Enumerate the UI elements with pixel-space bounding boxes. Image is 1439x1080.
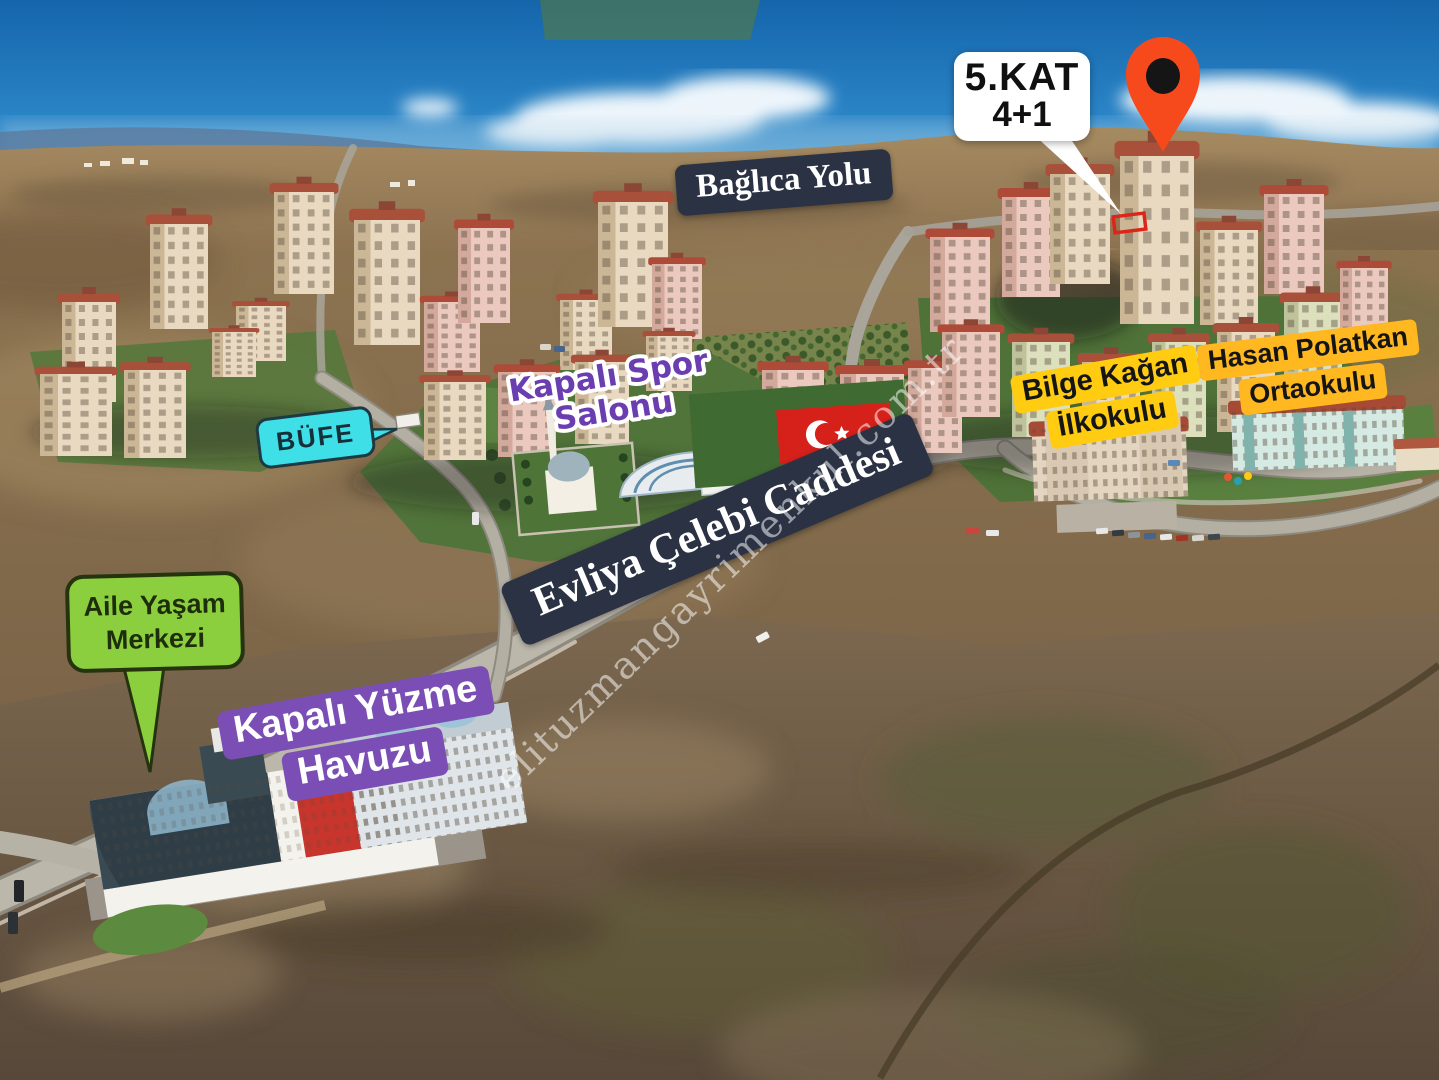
aile-yasam-line1: Aile Yaşam <box>73 587 236 625</box>
callout-5kat-4plus1: 5.KAT 4+1 <box>954 52 1090 141</box>
callout-floor-line: 5.KAT <box>954 58 1090 97</box>
label-aile-yasam-merkezi: Aile Yaşam Merkezi <box>65 571 245 673</box>
callout-rooms-line: 4+1 <box>954 97 1090 132</box>
aerial-listing-photo: Kapalı Spor Salonu Bağlıca Yolu 5.KAT 4+… <box>0 0 1439 1080</box>
kiosk-building <box>395 412 421 428</box>
aile-yasam-line2: Merkezi <box>74 621 237 659</box>
subject-tower <box>1114 131 1199 324</box>
